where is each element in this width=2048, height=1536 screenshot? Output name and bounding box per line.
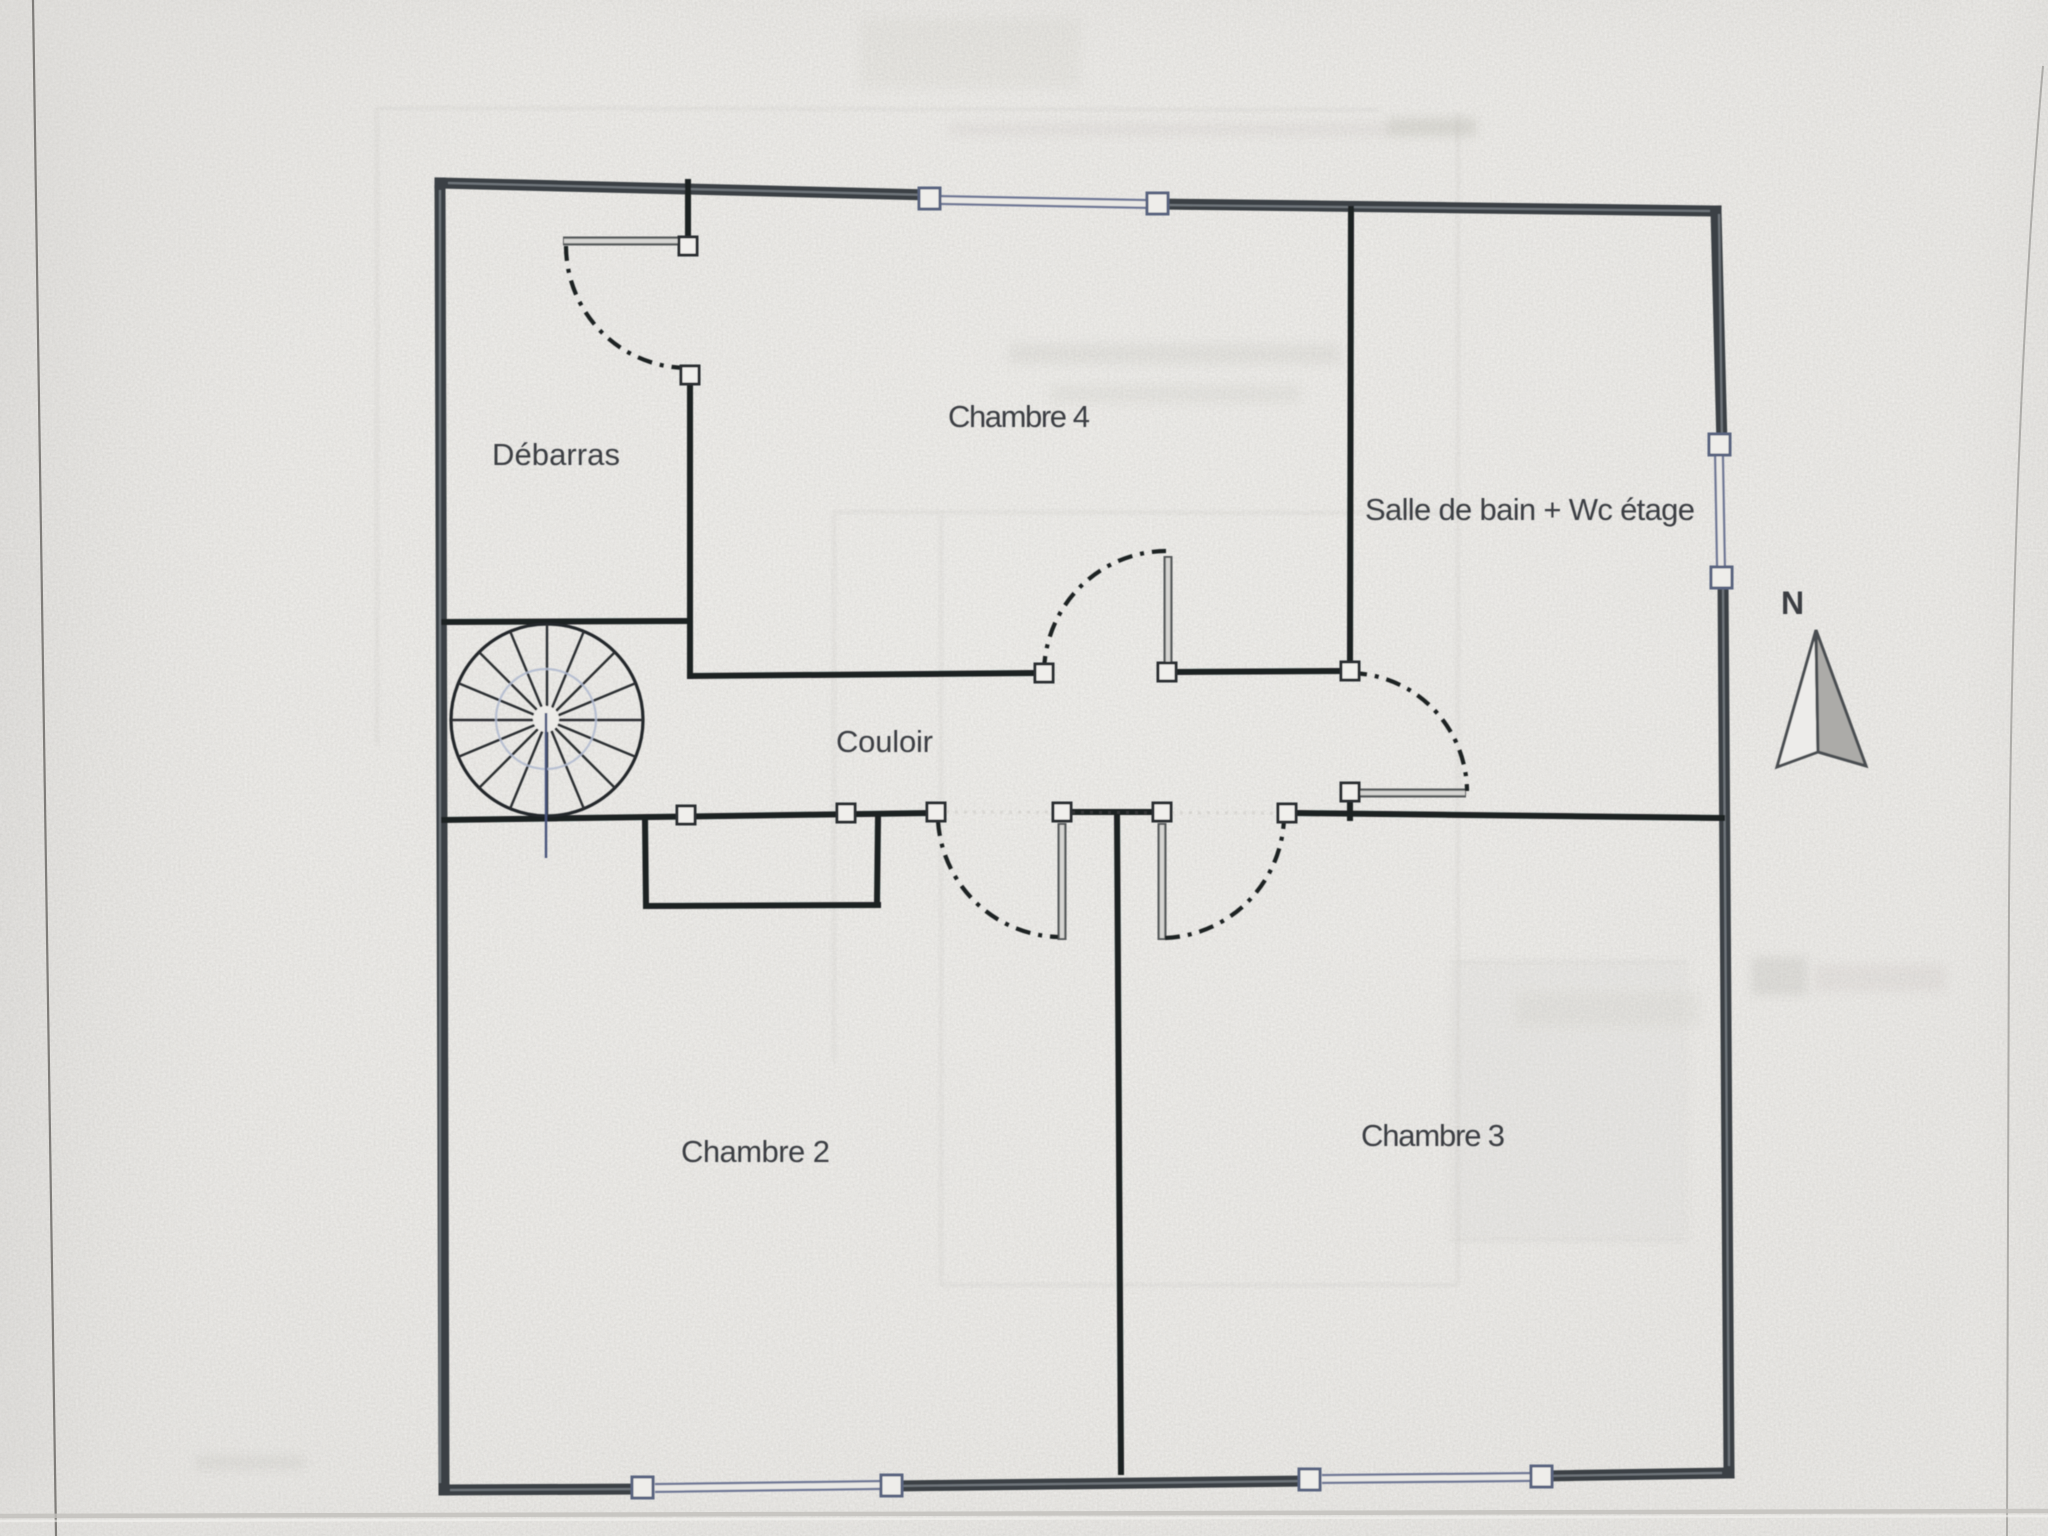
- svg-text:Salle de bain + Wc étage: Salle de bain + Wc étage: [1365, 492, 1695, 527]
- svg-text:Chambre 2: Chambre 2: [681, 1134, 830, 1169]
- svg-text:Débarras: Débarras: [492, 437, 620, 472]
- svg-text:Couloir: Couloir: [836, 724, 933, 759]
- svg-text:Chambre 3: Chambre 3: [1361, 1118, 1505, 1153]
- svg-text:Chambre 4: Chambre 4: [948, 399, 1090, 434]
- svg-text:N: N: [1781, 585, 1804, 621]
